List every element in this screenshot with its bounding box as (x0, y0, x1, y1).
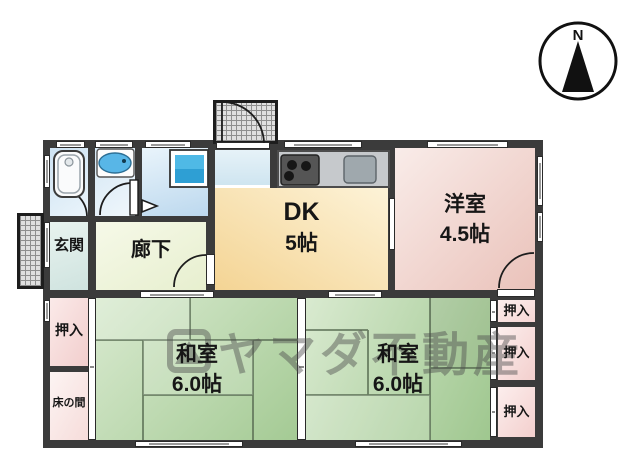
window (56, 141, 85, 148)
window (284, 141, 362, 148)
label-washitsu-right-name: 和室 (306, 338, 490, 368)
fusuma-between-washitsu (297, 298, 306, 440)
label-oshiire-right-top: 押入 (498, 304, 535, 318)
label-dk-name: DK (215, 198, 388, 227)
fusuma-closet-right-bottom (490, 387, 497, 437)
label-washitsu-left-name: 和室 (96, 338, 298, 368)
label-youshitsu: 洋室 4.5帖 (395, 188, 535, 248)
label-youshitsu-size: 4.5帖 (395, 218, 535, 248)
label-tokonoma: 床の間 (48, 398, 90, 410)
wall-landing-counter (270, 148, 277, 188)
window (145, 141, 191, 148)
label-dk-size: 5帖 (215, 227, 388, 257)
window (537, 156, 543, 206)
sliding-door-dk-washitsu (328, 291, 382, 298)
label-oshiire-right-bottom: 押入 (498, 405, 535, 419)
fusuma-closet-right-top (490, 300, 497, 322)
window (95, 141, 133, 148)
room-genkan (50, 222, 88, 290)
room-laundry (142, 148, 208, 216)
window (44, 155, 50, 188)
window (135, 441, 243, 447)
entrance-porch-step (17, 213, 44, 289)
window (355, 441, 462, 447)
compass: N (532, 14, 627, 109)
label-rouka: 廊下 (96, 240, 206, 262)
window (44, 300, 50, 322)
label-washitsu-right-size: 6.0帖 (306, 368, 490, 398)
door-rouka-dk (206, 254, 215, 285)
kitchen-backdoor-porch-step (213, 100, 278, 144)
label-washitsu-left: 和室 6.0帖 (96, 338, 298, 398)
room-washroom (95, 148, 135, 216)
label-oshiire-right-mid: 押入 (498, 346, 535, 360)
label-genkan: 玄関 (50, 238, 88, 254)
label-youshitsu-name: 洋室 (395, 188, 535, 218)
label-oshiire-left: 押入 (50, 323, 88, 338)
fusuma-closet-right-mid (490, 327, 497, 380)
kitchen-counter (277, 150, 390, 188)
label-washitsu-left-size: 6.0帖 (96, 368, 298, 398)
sliding-door-rouka-washitsu (140, 291, 214, 298)
label-dk: DK 5帖 (215, 198, 388, 257)
floorplan-canvas: N (0, 0, 640, 461)
room-bathroom (50, 148, 88, 216)
window (537, 212, 543, 242)
fusuma-closet-left (88, 298, 96, 440)
kitchen-backdoor-landing (215, 150, 270, 188)
label-washitsu-right: 和室 6.0帖 (306, 338, 490, 398)
door-youshitsu-closet (497, 289, 535, 297)
backdoor-opening (216, 142, 270, 149)
window (427, 141, 508, 148)
